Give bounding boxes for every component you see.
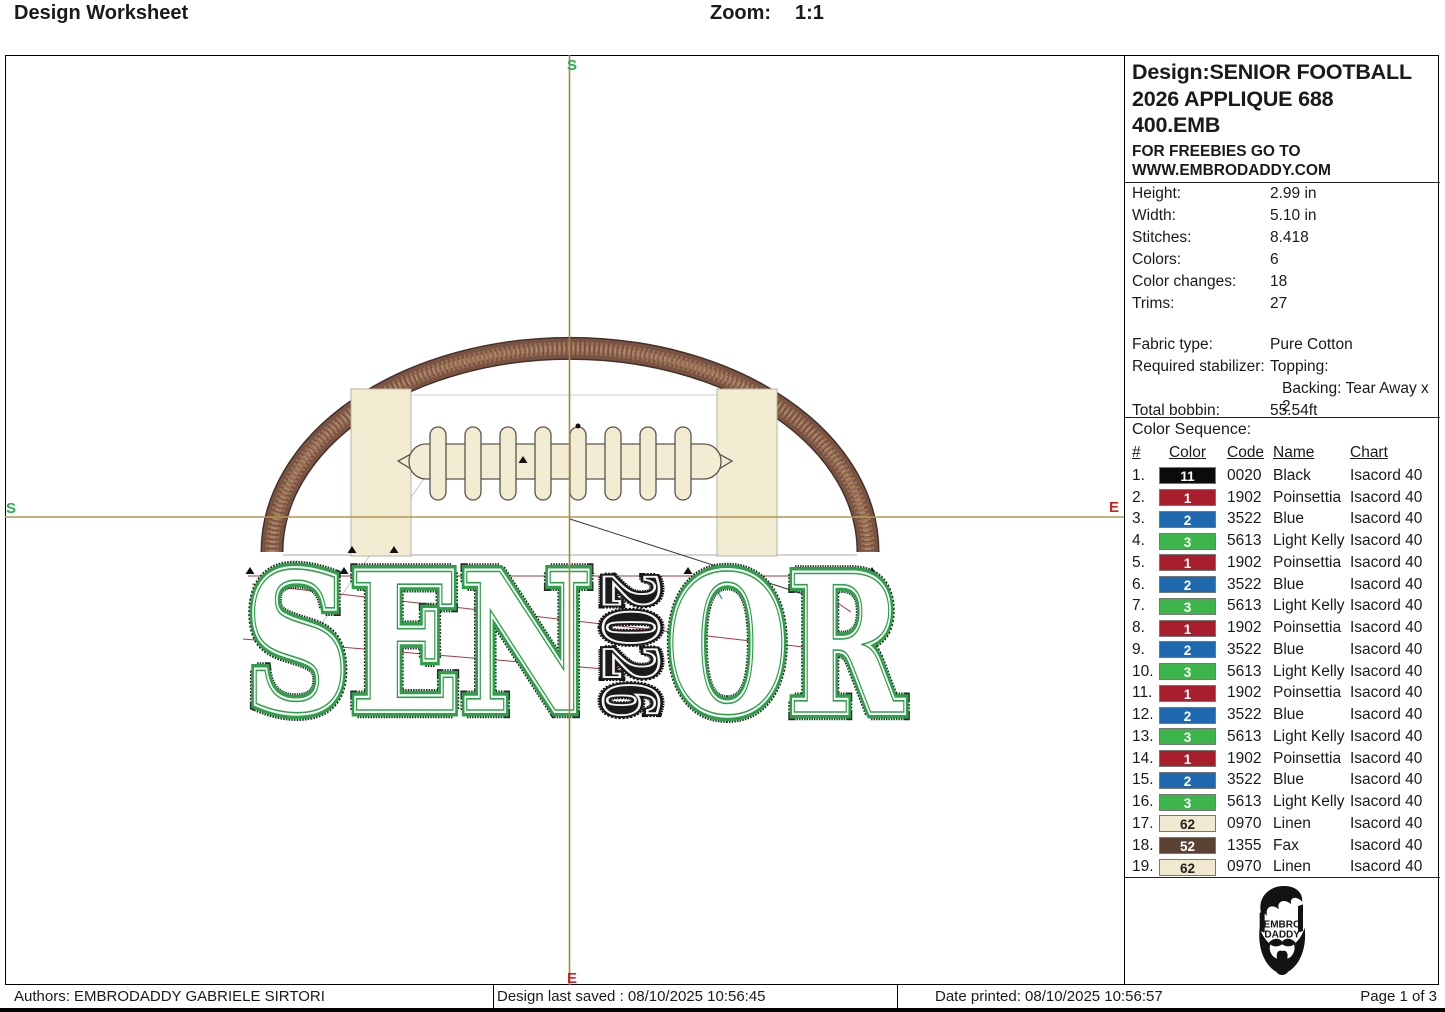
thread-chart: Isacord 40 — [1350, 597, 1441, 615]
row-number: 1. — [1125, 467, 1159, 485]
design-text-year: 2026 2026 2026 — [586, 573, 672, 718]
spec-value: 27 — [1270, 295, 1432, 317]
color-sequence-row: 16. 3 5613 Light Kelly Isacord 40 — [1125, 791, 1441, 813]
thread-code: 1902 — [1227, 554, 1272, 572]
row-number: 16. — [1125, 793, 1159, 811]
col-header-chart: Chart — [1350, 444, 1441, 462]
row-number: 8. — [1125, 619, 1159, 637]
color-sequence-row: 8. 1 1902 Poinsettia Isacord 40 — [1125, 617, 1441, 639]
color-swatch: 52 — [1159, 837, 1216, 854]
thread-name: Light Kelly — [1273, 663, 1349, 681]
color-sequence-header: # Color Code Name Chart — [1125, 444, 1441, 462]
color-swatch: 11 — [1159, 467, 1216, 484]
thread-code: 1902 — [1227, 684, 1272, 702]
thread-chart: Isacord 40 — [1350, 684, 1441, 702]
design-lettering: SEN SEN SEN SEN OR OR OR OR 2026 2026 20… — [245, 532, 905, 757]
thread-name: Poinsettia — [1273, 554, 1349, 572]
spec-label: Required stabilizer: — [1132, 358, 1270, 380]
panel-divider — [1125, 877, 1440, 878]
color-sequence-row: 4. 3 5613 Light Kelly Isacord 40 — [1125, 530, 1441, 552]
thread-code: 0970 — [1227, 815, 1272, 833]
thread-chart: Isacord 40 — [1350, 706, 1441, 724]
thread-code: 5613 — [1227, 728, 1272, 746]
design-canvas: SEN SEN SEN SEN OR OR OR OR 2026 2026 20… — [5, 55, 1124, 985]
thread-chart: Isacord 40 — [1350, 576, 1441, 594]
thread-chart: Isacord 40 — [1350, 532, 1441, 550]
color-swatch: 1 — [1159, 750, 1216, 767]
color-swatch: 3 — [1159, 598, 1216, 615]
thread-code: 0970 — [1227, 858, 1272, 876]
color-swatch: 1 — [1159, 620, 1216, 637]
spec-row: Color changes: 18 — [1132, 273, 1432, 295]
row-number: 6. — [1125, 576, 1159, 594]
color-sequence-row: 3. 2 3522 Blue Isacord 40 — [1125, 509, 1441, 531]
spec-row: Colors: 6 — [1132, 251, 1432, 273]
color-sequence-row: 9. 2 3522 Blue Isacord 40 — [1125, 639, 1441, 661]
thread-chart: Isacord 40 — [1350, 750, 1441, 768]
color-swatch: 1 — [1159, 489, 1216, 506]
thread-chart: Isacord 40 — [1350, 467, 1441, 485]
spec-label: Trims: — [1132, 295, 1270, 317]
color-sequence-row: 1. 11 0020 Black Isacord 40 — [1125, 465, 1441, 487]
row-number: 13. — [1125, 728, 1159, 746]
thread-chart: Isacord 40 — [1350, 663, 1441, 681]
thread-chart: Isacord 40 — [1350, 641, 1441, 659]
thread-name: Linen — [1273, 858, 1349, 876]
color-sequence-title: Color Sequence: — [1132, 421, 1251, 439]
thread-name: Light Kelly — [1273, 532, 1349, 550]
row-number: 17. — [1125, 815, 1159, 833]
thread-name: Blue — [1273, 771, 1349, 789]
spec-row: Fabric type: Pure Cotton — [1132, 336, 1438, 358]
color-swatch: 2 — [1159, 707, 1216, 724]
color-sequence-row: 6. 2 3522 Blue Isacord 40 — [1125, 574, 1441, 596]
design-name-line: 400.EMB — [1132, 112, 1412, 139]
freebies-line: FOR FREEBIES GO TO — [1132, 143, 1331, 162]
color-swatch: 1 — [1159, 685, 1216, 702]
thread-name: Light Kelly — [1273, 597, 1349, 615]
thread-chart: Isacord 40 — [1350, 771, 1441, 789]
thread-chart: Isacord 40 — [1350, 489, 1441, 507]
spec-row: Backing: Tear Away x 2 — [1132, 380, 1438, 402]
color-sequence-row: 18. 52 1355 Fax Isacord 40 — [1125, 835, 1441, 857]
color-sequence-row: 17. 62 0970 Linen Isacord 40 — [1125, 813, 1441, 835]
panel-divider — [1125, 182, 1440, 183]
design-specs: Height: 2.99 in Width: 5.10 in Stitches:… — [1132, 185, 1432, 317]
panel-divider — [1125, 417, 1440, 418]
color-swatch: 62 — [1159, 815, 1216, 832]
thread-code: 3522 — [1227, 576, 1272, 594]
color-swatch: 2 — [1159, 576, 1216, 593]
svg-text:OR: OR — [667, 534, 905, 757]
spec-value: Topping: — [1270, 358, 1438, 380]
row-number: 10. — [1125, 663, 1159, 681]
footer-last-saved: Design last saved : 08/10/2025 10:56:45 — [497, 988, 766, 1005]
bottom-edge-bar — [0, 1008, 1445, 1012]
color-swatch: 3 — [1159, 533, 1216, 550]
svg-text:2026: 2026 — [586, 573, 672, 718]
worksheet-title: Design Worksheet — [14, 2, 188, 25]
color-sequence-row: 2. 1 1902 Poinsettia Isacord 40 — [1125, 487, 1441, 509]
linen-band-right — [717, 389, 777, 556]
thread-code: 3522 — [1227, 510, 1272, 528]
thread-name: Light Kelly — [1273, 793, 1349, 811]
zoom-value: 1:1 — [795, 2, 824, 25]
thread-code: 1902 — [1227, 750, 1272, 768]
spec-label: Fabric type: — [1132, 336, 1270, 358]
spec-label: Height: — [1132, 185, 1270, 207]
svg-text:SEN: SEN — [245, 532, 593, 755]
linen-band-left — [351, 389, 411, 556]
design-text-sen: SEN SEN SEN SEN — [245, 532, 593, 755]
color-swatch: 1 — [1159, 554, 1216, 571]
row-number: 19. — [1125, 858, 1159, 876]
thread-code: 3522 — [1227, 706, 1272, 724]
thread-name: Poinsettia — [1273, 489, 1349, 507]
col-header-color: Color — [1159, 444, 1216, 462]
color-swatch: 3 — [1159, 728, 1216, 745]
footer-page-number: Page 1 of 3 — [1360, 988, 1437, 1005]
spec-value: 55.54ft — [1270, 402, 1438, 424]
thread-chart: Isacord 40 — [1350, 793, 1441, 811]
spec-row: Required stabilizer: Topping: — [1132, 358, 1438, 380]
design-text-or: OR OR OR OR — [667, 534, 905, 757]
thread-name: Poinsettia — [1273, 684, 1349, 702]
thread-code: 5613 — [1227, 793, 1272, 811]
thread-chart: Isacord 40 — [1350, 554, 1441, 572]
embrodaddy-logo: EMBRO DADDY — [1233, 881, 1333, 981]
thread-code: 5613 — [1227, 597, 1272, 615]
color-swatch: 2 — [1159, 641, 1216, 658]
freebies-note: FOR FREEBIES GO TO WWW.EMBRODADDY.COM — [1132, 143, 1331, 180]
color-swatch: 62 — [1159, 859, 1216, 876]
row-number: 2. — [1125, 489, 1159, 507]
thread-chart: Isacord 40 — [1350, 815, 1441, 833]
thread-name: Light Kelly — [1273, 728, 1349, 746]
spec-label: Color changes: — [1132, 273, 1270, 295]
thread-name: Poinsettia — [1273, 619, 1349, 637]
row-number: 12. — [1125, 706, 1159, 724]
spec-value: 5.10 in — [1270, 207, 1432, 229]
spec-value: 2.99 in — [1270, 185, 1432, 207]
row-number: 7. — [1125, 597, 1159, 615]
spec-value: Pure Cotton — [1270, 336, 1438, 358]
spec-row: Trims: 27 — [1132, 295, 1432, 317]
thread-code: 5613 — [1227, 663, 1272, 681]
footer-divider — [493, 985, 494, 1008]
design-info-panel: Design:SENIOR FOOTBALL 2026 APPLIQUE 688… — [1124, 55, 1440, 985]
thread-name: Black — [1273, 467, 1349, 485]
color-sequence-row: 7. 3 5613 Light Kelly Isacord 40 — [1125, 596, 1441, 618]
thread-name: Blue — [1273, 510, 1349, 528]
thread-name: Linen — [1273, 815, 1349, 833]
logo-text-daddy: DADDY — [1264, 930, 1300, 941]
spec-row: Width: 5.10 in — [1132, 207, 1432, 229]
thread-code: 0020 — [1227, 467, 1272, 485]
color-sequence-row: 13. 3 5613 Light Kelly Isacord 40 — [1125, 726, 1441, 748]
thread-code: 1902 — [1227, 619, 1272, 637]
zoom-label: Zoom: — [710, 2, 771, 25]
spec-label: Width: — [1132, 207, 1270, 229]
color-sequence-row: 12. 2 3522 Blue Isacord 40 — [1125, 704, 1441, 726]
row-number: 11. — [1125, 684, 1159, 702]
thread-chart: Isacord 40 — [1350, 619, 1441, 637]
football-laces — [398, 427, 732, 500]
thread-chart: Isacord 40 — [1350, 858, 1441, 876]
thread-chart: Isacord 40 — [1350, 510, 1441, 528]
spec-value: Backing: Tear Away x 2 — [1270, 380, 1438, 402]
color-swatch: 3 — [1159, 794, 1216, 811]
spec-row: Height: 2.99 in — [1132, 185, 1432, 207]
row-number: 5. — [1125, 554, 1159, 572]
color-sequence-row: 11. 1 1902 Poinsettia Isacord 40 — [1125, 683, 1441, 705]
row-number: 15. — [1125, 771, 1159, 789]
thread-code: 1355 — [1227, 837, 1272, 855]
col-header-code: Code — [1227, 444, 1272, 462]
logo-hair — [1260, 886, 1302, 916]
color-sequence-row: 15. 2 3522 Blue Isacord 40 — [1125, 770, 1441, 792]
marker-start-top: S — [567, 57, 577, 74]
thread-name: Blue — [1273, 641, 1349, 659]
thread-name: Blue — [1273, 576, 1349, 594]
row-number: 18. — [1125, 837, 1159, 855]
thread-chart: Isacord 40 — [1350, 728, 1441, 746]
thread-code: 3522 — [1227, 771, 1272, 789]
fabric-specs: Fabric type: Pure Cotton Required stabil… — [1132, 336, 1438, 424]
color-sequence-row: 10. 3 5613 Light Kelly Isacord 40 — [1125, 661, 1441, 683]
marker-end-right: E — [1109, 499, 1119, 516]
row-number: 3. — [1125, 510, 1159, 528]
spec-label: Colors: — [1132, 251, 1270, 273]
footer-date-printed: Date printed: 08/10/2025 10:56:57 — [935, 988, 1163, 1005]
thread-name: Blue — [1273, 706, 1349, 724]
color-swatch: 2 — [1159, 511, 1216, 528]
footer-authors: Authors: EMBRODADDY GABRIELE SIRTORI — [14, 988, 325, 1005]
thread-code: 5613 — [1227, 532, 1272, 550]
design-name-line: Design:SENIOR FOOTBALL — [1132, 59, 1412, 86]
freebies-line: WWW.EMBRODADDY.COM — [1132, 162, 1331, 181]
thread-name: Fax — [1273, 837, 1349, 855]
spec-label — [1132, 380, 1270, 402]
color-sequence-row: 14. 1 1902 Poinsettia Isacord 40 — [1125, 748, 1441, 770]
row-number: 9. — [1125, 641, 1159, 659]
design-name-line: 2026 APPLIQUE 688 — [1132, 86, 1412, 113]
thread-chart: Isacord 40 — [1350, 837, 1441, 855]
color-sequence-row: 5. 1 1902 Poinsettia Isacord 40 — [1125, 552, 1441, 574]
col-header-name: Name — [1273, 444, 1349, 462]
spec-label: Stitches: — [1132, 229, 1270, 251]
color-sequence-row: 19. 62 0970 Linen Isacord 40 — [1125, 857, 1441, 879]
color-swatch: 2 — [1159, 772, 1216, 789]
row-number: 14. — [1125, 750, 1159, 768]
row-number: 4. — [1125, 532, 1159, 550]
col-header-num: # — [1125, 444, 1159, 462]
color-sequence-table: 1. 11 0020 Black Isacord 40 2. 1 1902 Po… — [1125, 465, 1441, 878]
marker-end-bottom: E — [567, 970, 577, 985]
thread-code: 3522 — [1227, 641, 1272, 659]
spec-value: 6 — [1270, 251, 1432, 273]
color-swatch: 3 — [1159, 663, 1216, 680]
spec-row: Stitches: 8.418 — [1132, 229, 1432, 251]
marker-start-left: S — [6, 500, 16, 517]
spec-value: 18 — [1270, 273, 1432, 295]
design-name: Design:SENIOR FOOTBALL 2026 APPLIQUE 688… — [1132, 59, 1412, 139]
footer-divider — [897, 985, 898, 1008]
thread-code: 1902 — [1227, 489, 1272, 507]
spec-value: 8.418 — [1270, 229, 1432, 251]
thread-name: Poinsettia — [1273, 750, 1349, 768]
